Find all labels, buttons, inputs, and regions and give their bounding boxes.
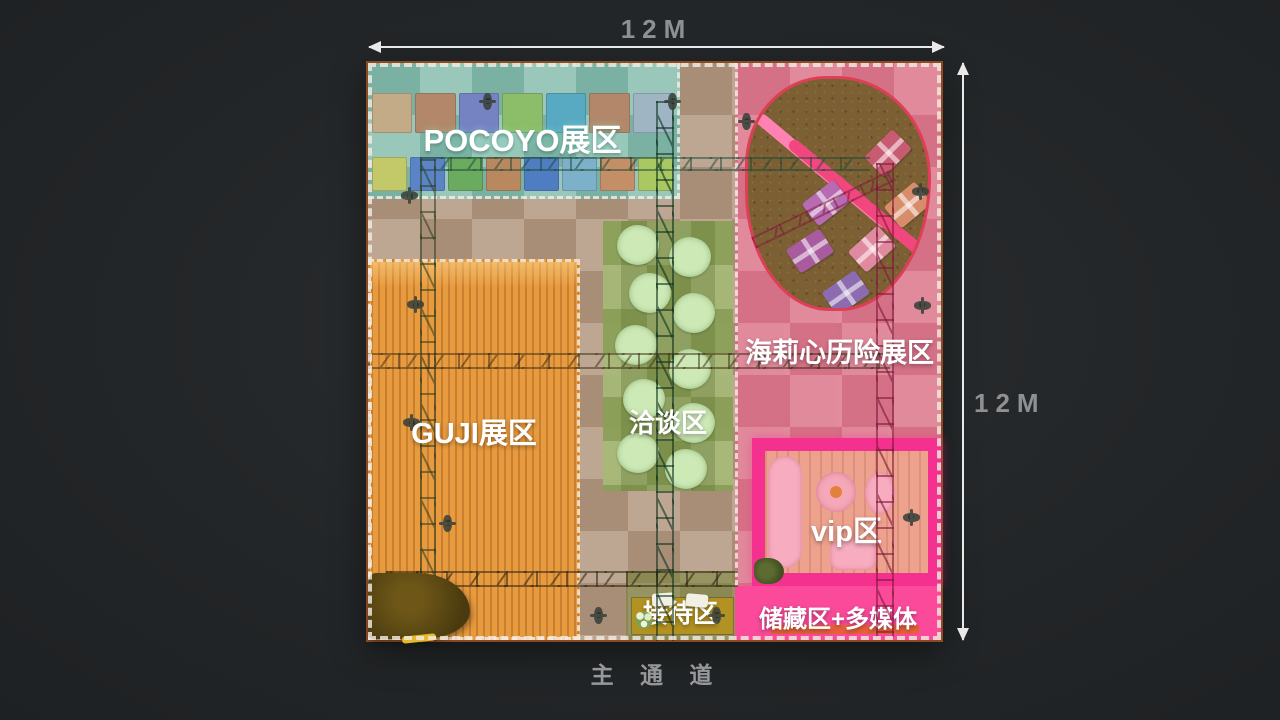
plant-decor [754,558,784,584]
person-figure [903,513,920,522]
person-figure [742,113,751,130]
main-aisle-label: 主 通 道 [368,656,945,690]
person-figure [594,607,603,624]
chair [685,593,708,608]
truss-vertical [656,101,674,641]
round-table [617,225,659,265]
dimension-width-label: 12M [368,14,945,45]
person-figure [407,300,424,309]
zone-chucang-label: 储藏区+多媒体 [735,599,941,634]
person-figure [912,187,929,196]
zone-pocoyo: POCOYO展区 [368,63,680,199]
gift-box [822,270,871,311]
dimension-width-arrow [369,46,944,48]
vip-table [816,472,856,512]
person-figure [914,301,931,310]
gift-box [786,228,835,273]
zone-chucang: 储藏区+多媒体 [735,586,941,640]
person-figure [483,93,492,110]
person-figure [668,93,677,110]
round-table [669,237,711,277]
truss-vertical [876,163,894,637]
person-figure [443,515,452,532]
person-figure [712,607,721,624]
round-table [673,293,715,333]
dimension-height-label: 12M [974,388,1046,419]
zone-pocoyo-label: POCOYO展区 [368,115,677,160]
zone-haili-label: 海莉心历险展区 [738,331,941,370]
floor-plan-scene: 12M 12M POCOYO展区 [0,0,1280,720]
zone-qiatan-label: 洽谈区 [603,403,733,440]
flower-decor [634,610,654,630]
booth-plan: POCOYO展区 海莉心历险展区 GUJI展区 [368,63,941,640]
adventure-island [745,76,931,311]
zone-guji-label: GUJI展区 [371,410,577,452]
dimension-height-arrow [962,63,964,640]
person-figure [401,191,418,200]
